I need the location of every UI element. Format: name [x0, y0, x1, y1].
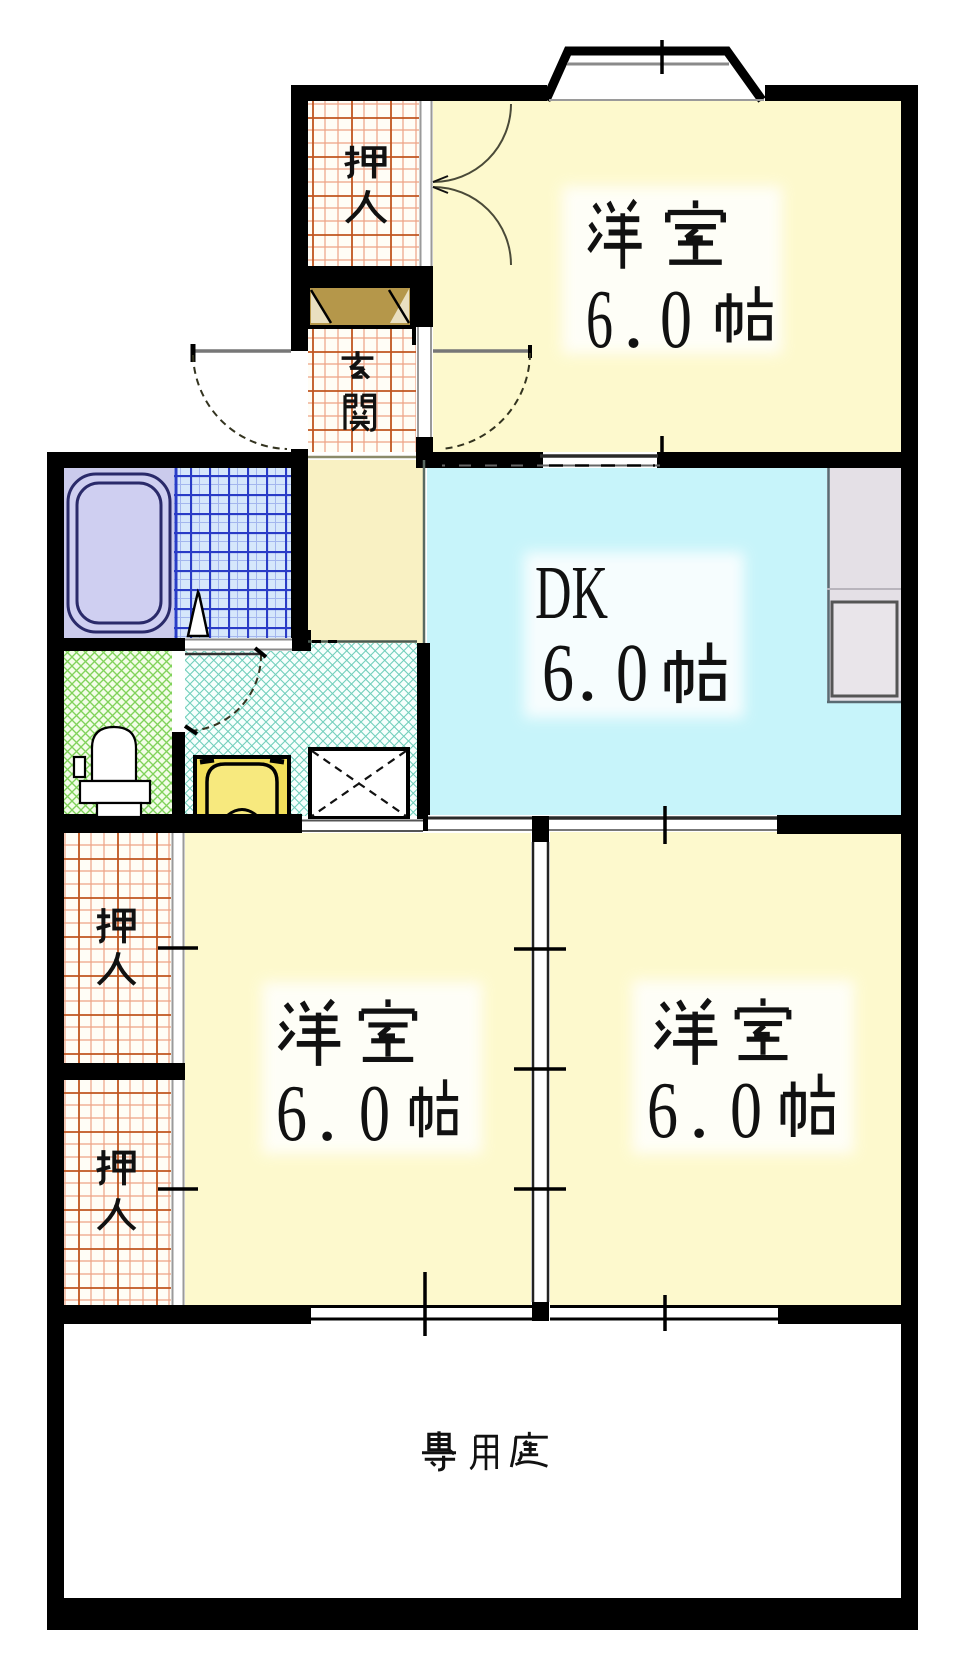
svg-text:6: 6 [276, 1068, 307, 1158]
svg-text:.: . [623, 273, 644, 366]
svg-text:6: 6 [647, 1065, 678, 1155]
svg-text:.: . [577, 626, 598, 718]
svg-text:6: 6 [586, 273, 613, 366]
svg-text:0: 0 [359, 1068, 390, 1158]
svg-text:DK: DK [535, 551, 608, 635]
svg-text:0: 0 [660, 273, 692, 366]
svg-text:6: 6 [542, 626, 574, 718]
svg-text:0: 0 [730, 1065, 762, 1155]
svg-text:.: . [317, 1068, 337, 1158]
svg-text:.: . [689, 1065, 709, 1155]
svg-text:0: 0 [616, 626, 648, 718]
